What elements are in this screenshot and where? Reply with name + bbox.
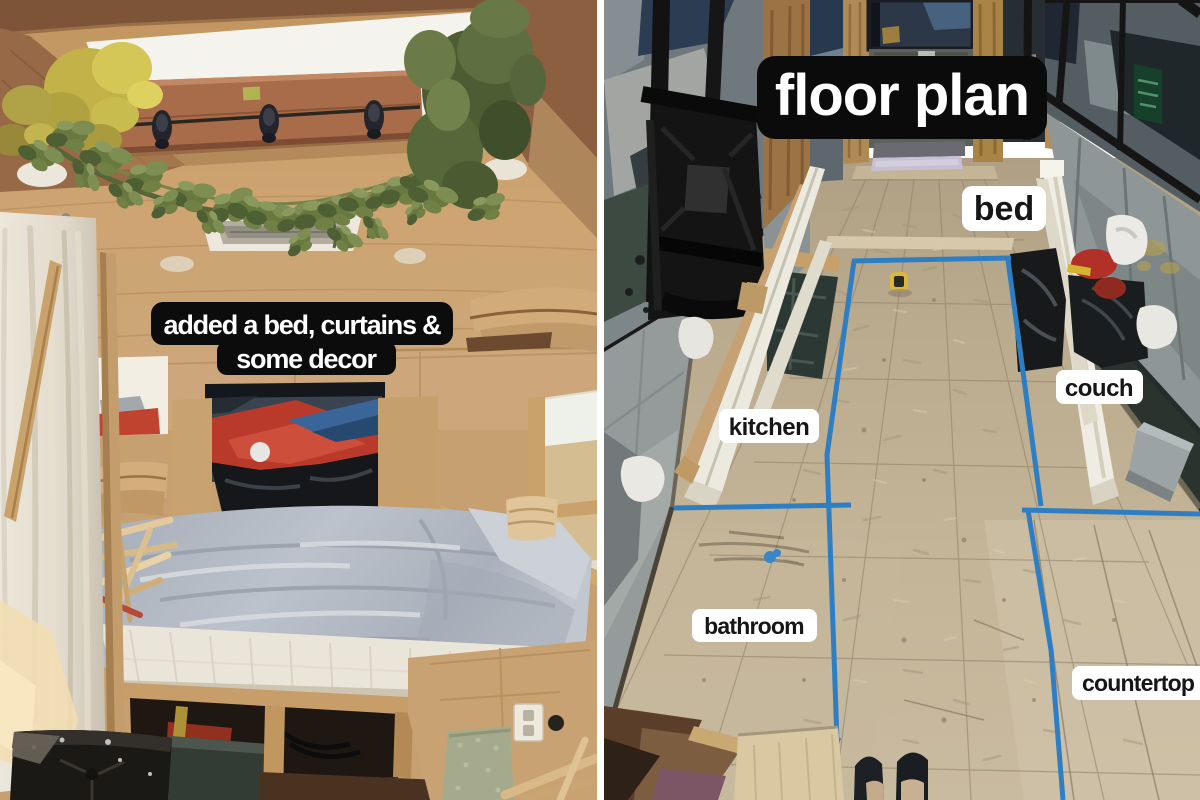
svg-text:couch: couch bbox=[1065, 375, 1133, 402]
svg-text:countertop: countertop bbox=[1082, 670, 1195, 696]
svg-text:some decor: some decor bbox=[236, 344, 377, 374]
svg-text:kitchen: kitchen bbox=[729, 414, 810, 441]
svg-text:bathroom: bathroom bbox=[704, 613, 804, 639]
svg-text:bed: bed bbox=[974, 190, 1034, 228]
svg-text:added a bed, curtains &: added a bed, curtains & bbox=[164, 310, 442, 340]
svg-text:floor plan: floor plan bbox=[775, 63, 1029, 128]
